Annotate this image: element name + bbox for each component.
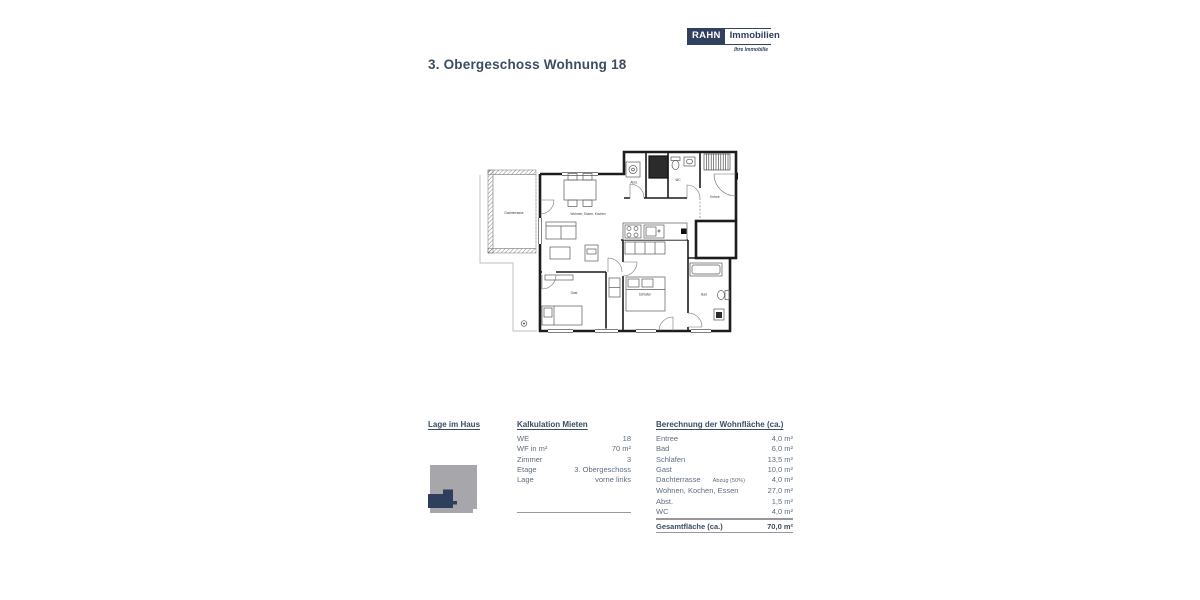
- row-value: 6,0 m²: [772, 444, 793, 454]
- table-row: Schlafen 13,5 m²: [656, 455, 793, 465]
- table-row: Bad 6,0 m²: [656, 444, 793, 454]
- section-kalkulation-mieten: Kalkulation Mieten WE 18 WF in m² 70 m² …: [517, 414, 631, 513]
- row-value: 13,5 m²: [768, 455, 793, 465]
- windows: [538, 172, 711, 334]
- row-label: WF in m²: [517, 444, 547, 454]
- row-note: Abzug (50%): [705, 476, 745, 486]
- row-label: Entree: [656, 434, 678, 444]
- label-schlafen: Schlafen: [639, 293, 652, 297]
- label-entree: Entree: [710, 195, 720, 199]
- row-value: 4,0 m²: [772, 475, 793, 485]
- table-row: WF in m² 70 m²: [517, 444, 631, 454]
- row-label: WC: [656, 507, 669, 517]
- page-title: 3. Obergeschoss Wohnung 18: [428, 57, 627, 72]
- row-label: Dachterrasse: [656, 475, 701, 485]
- row-value: 4,0 m²: [772, 434, 793, 444]
- row-label: Bad: [656, 444, 669, 454]
- table-row: Abst. 1,5 m²: [656, 497, 793, 507]
- section-berechnung-wohnflaeche: Berechnung der Wohnfläche (ca.) Entree 4…: [656, 414, 793, 533]
- row-value: 10,0 m²: [768, 465, 793, 475]
- row-value: 3. Obergeschoss: [574, 465, 631, 475]
- section-lage-im-haus: Lage im Haus: [428, 414, 508, 516]
- company-logo: RAHN Immobilien Ihre Immobilie: [687, 28, 771, 53]
- table-row: Lage vorne links: [517, 475, 631, 485]
- table-row: Entree 4,0 m²: [656, 434, 793, 444]
- row-value: 4,0 m²: [772, 507, 793, 517]
- stairs: [704, 154, 730, 170]
- row-label: Schlafen: [656, 455, 685, 465]
- position-diagram: [428, 462, 478, 516]
- row-label: Abst.: [656, 497, 673, 507]
- label-abst: Abst.: [630, 181, 637, 185]
- total-row: Gesamtfläche (ca.) 70,0 m²: [656, 518, 793, 533]
- label-gast: Gast: [571, 291, 578, 295]
- logo-tagline: Ihre Immobilie: [687, 47, 771, 53]
- row-label: Wohnen, Kochen, Essen: [656, 486, 738, 496]
- row-label: Zimmer: [517, 455, 542, 465]
- table-row: Zimmer 3: [517, 455, 631, 465]
- floorplan-drawing: Dachterrasse Wohnen, Essen, Kochen Abst.…: [478, 144, 738, 340]
- label-dachterrasse: Dachterrasse: [505, 211, 524, 215]
- logo-box: RAHN Immobilien: [687, 28, 771, 45]
- kalkulation-table: WE 18 WF in m² 70 m² Zimmer 3 Etage 3. O…: [517, 434, 631, 485]
- table-row: Wohnen, Kochen, Essen 27,0 m²: [656, 486, 793, 496]
- row-value: vorne links: [595, 475, 631, 485]
- row-label: WE: [517, 434, 529, 444]
- signature-line: [517, 512, 631, 513]
- row-value: 1,5 m²: [772, 497, 793, 507]
- table-row: WC 4,0 m²: [656, 507, 793, 517]
- stairwell-core: [696, 221, 736, 258]
- total-label: Gesamtfläche (ca.): [656, 522, 723, 531]
- page: RAHN Immobilien Ihre Immobilie 3. Oberge…: [0, 0, 1200, 600]
- shaft: [649, 156, 668, 178]
- row-label: Etage: [517, 465, 537, 475]
- row-value: 70 m²: [612, 444, 631, 454]
- logo-brand-secondary: Immobilien: [725, 29, 785, 44]
- table-row: Etage 3. Obergeschoss: [517, 465, 631, 475]
- table-row: Gast 10,0 m²: [656, 465, 793, 475]
- berechnung-heading: Berechnung der Wohnfläche (ca.): [656, 420, 783, 429]
- row-label: Lage: [517, 475, 534, 485]
- total-value: 70,0 m²: [767, 522, 793, 531]
- table-row: Dachterrasse Abzug (50%) 4,0 m²: [656, 475, 793, 486]
- row-value: 3: [627, 455, 631, 465]
- table-row: WE 18: [517, 434, 631, 444]
- row-value: 27,0 m²: [768, 486, 793, 496]
- row-label: Gast: [656, 465, 672, 475]
- lage-heading: Lage im Haus: [428, 420, 480, 429]
- kalkulation-heading: Kalkulation Mieten: [517, 420, 588, 429]
- label-bad: Bad: [701, 293, 707, 297]
- label-wc: WC: [675, 178, 681, 182]
- label-wohnen: Wohnen, Essen, Kochen: [570, 212, 605, 216]
- row-value: 18: [623, 434, 631, 444]
- logo-brand-primary: RAHN: [688, 29, 725, 44]
- berechnung-table: Entree 4,0 m² Bad 6,0 m² Schlafen 13,5 m…: [656, 434, 793, 517]
